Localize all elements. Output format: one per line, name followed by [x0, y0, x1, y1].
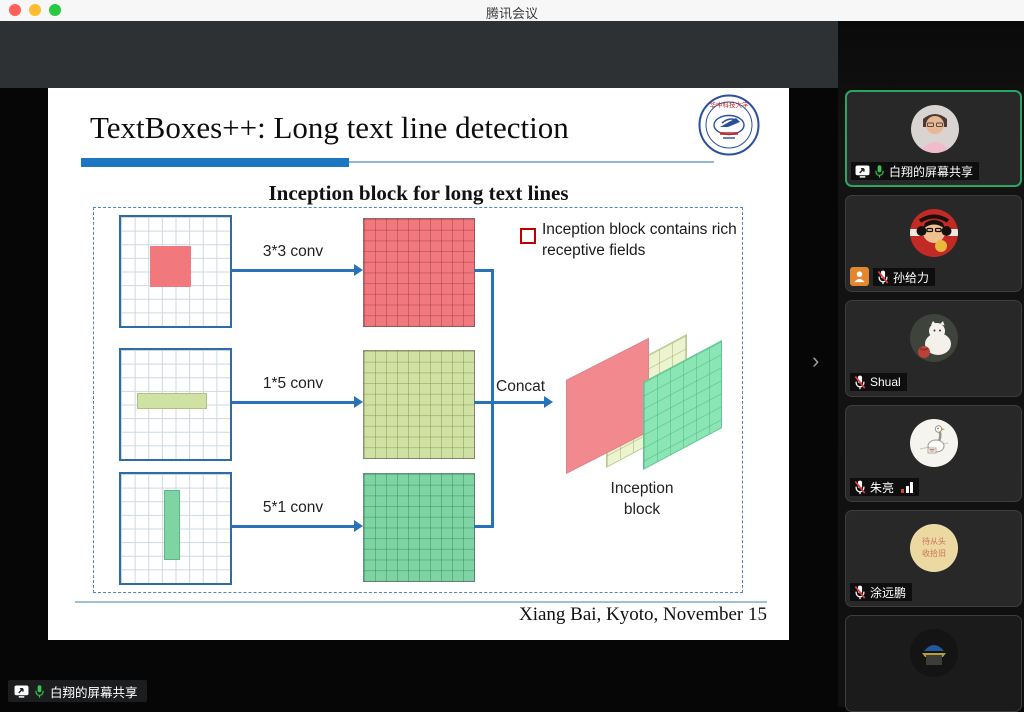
- participant-label: 孙给力: [873, 268, 935, 286]
- conv-label-3x3: 3*3 conv: [223, 243, 363, 261]
- avatar: 待从头 收拾旧: [910, 524, 958, 572]
- participant-tile[interactable]: 孙给力: [845, 195, 1022, 292]
- avatar: [910, 314, 958, 362]
- receptive-field-1x5: [137, 393, 207, 409]
- arrow-3x3-conv: [232, 269, 354, 272]
- participant-tile[interactable]: Shual: [845, 300, 1022, 397]
- feature-map-1x5: [363, 350, 475, 459]
- input-grid-3x3: [119, 215, 232, 328]
- share-status-label: 白翔的屏幕共享: [50, 682, 138, 701]
- participant-label: 涂远鹏: [850, 583, 912, 601]
- mic-on-icon: [874, 164, 885, 179]
- sidebar-collapse-chevron-icon[interactable]: ›: [812, 350, 819, 372]
- participant-name: 涂远鹏: [870, 584, 906, 601]
- window-titlebar: 腾讯会议: [0, 0, 1024, 22]
- university-logo: 华中科技大学: [698, 94, 760, 156]
- mic-muted-icon: [854, 585, 866, 600]
- bullet-text: Inception block contains rich receptive …: [542, 220, 740, 262]
- title-underline-thick: [81, 158, 349, 167]
- shared-slide: TextBoxes++: Long text line detection 华中…: [48, 88, 789, 640]
- network-signal-icon: [901, 482, 913, 493]
- receptive-field-5x1: [164, 490, 180, 560]
- input-grid-1x5: [119, 348, 232, 461]
- avatar: [911, 105, 959, 153]
- conv-label-1x5: 1*5 conv: [223, 375, 363, 393]
- arrow-5x1-conv: [232, 525, 354, 528]
- slide-subtitle: Inception block for long text lines: [48, 181, 789, 206]
- avatar: [910, 419, 958, 467]
- participant-tile[interactable]: 待从头 收拾旧 涂远鹏: [845, 510, 1022, 607]
- avatar: [910, 629, 958, 677]
- participant-tile[interactable]: 白翔的屏幕共享: [845, 90, 1022, 187]
- feature-map-3x3: [363, 218, 475, 327]
- participant-label: 朱亮: [850, 478, 919, 496]
- conv-label-5x1: 5*1 conv: [223, 499, 363, 517]
- arrow-concat: [474, 401, 544, 404]
- participant-name: Shual: [870, 375, 901, 389]
- arrow-1x5-conv: [232, 401, 354, 404]
- role-person-badge-icon: [850, 267, 869, 286]
- shared-screen-top-strip: [0, 21, 838, 88]
- svg-text:待从头: 待从头: [922, 536, 946, 546]
- mic-muted-icon: [877, 270, 889, 285]
- svg-text:收拾旧: 收拾旧: [922, 548, 946, 558]
- window-title: 腾讯会议: [0, 3, 1024, 22]
- connector-bottom: [474, 525, 493, 528]
- participant-label: 白翔的屏幕共享: [851, 162, 979, 180]
- connector-vertical: [491, 269, 494, 528]
- input-grid-5x1: [119, 472, 232, 585]
- feature-map-5x1: [363, 473, 475, 582]
- title-underline-thin: [349, 161, 714, 163]
- receptive-field-3x3: [150, 246, 191, 287]
- participant-label: Shual: [850, 373, 907, 391]
- logo-chinese-text: 华中科技大学: [710, 100, 750, 109]
- participant-name: 孙给力: [893, 269, 929, 286]
- screen-share-icon: [855, 165, 870, 178]
- participant-tile[interactable]: [845, 615, 1022, 712]
- concat-label: Concat: [496, 378, 545, 396]
- screen-share-icon: [14, 685, 29, 698]
- participant-tile[interactable]: 朱亮: [845, 405, 1022, 502]
- inception-block-label: Inception block: [596, 479, 688, 521]
- participant-name: 白翔的屏幕共享: [889, 163, 973, 180]
- footer-divider-line: [75, 601, 767, 603]
- avatar: [910, 209, 958, 257]
- slide-credit: Xiang Bai, Kyoto, November 15: [519, 604, 767, 626]
- participant-name: 朱亮: [870, 479, 894, 496]
- mic-muted-icon: [854, 480, 866, 495]
- mic-on-icon: [34, 684, 45, 699]
- bullet-square-icon: [520, 228, 536, 244]
- slide-title: TextBoxes++: Long text line detection: [90, 110, 569, 146]
- screen-share-status-pill: 白翔的屏幕共享: [8, 680, 147, 702]
- mic-muted-icon: [854, 375, 866, 390]
